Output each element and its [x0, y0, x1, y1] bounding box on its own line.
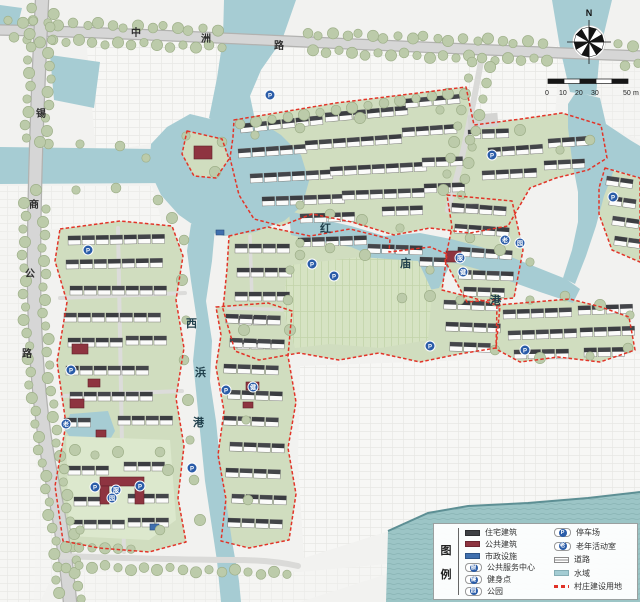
- house-roof: [612, 347, 625, 352]
- house-roof: [333, 138, 346, 143]
- tree: [46, 361, 54, 369]
- house-roof: [450, 342, 463, 347]
- tree: [242, 416, 250, 424]
- public-building: [96, 430, 106, 437]
- legend-label: 公共服务中心: [487, 562, 535, 573]
- open-field: [283, 257, 432, 348]
- svg-text:P: P: [69, 368, 73, 374]
- svg-text:健: 健: [460, 268, 466, 276]
- scale-bar-segment: [596, 79, 612, 84]
- house-roof: [84, 392, 97, 396]
- house-roof: [84, 286, 97, 290]
- house-roof: [344, 166, 357, 171]
- tree: [199, 24, 207, 32]
- house-roof: [280, 145, 293, 150]
- tree: [101, 41, 109, 49]
- tree: [38, 459, 46, 467]
- parking-icon: P: [425, 341, 435, 351]
- parking-icon: P: [83, 245, 93, 255]
- tree: [43, 47, 54, 58]
- house-roof: [424, 184, 437, 189]
- house-roof: [230, 442, 243, 447]
- tree: [111, 183, 121, 193]
- house-roof: [112, 392, 125, 396]
- house-roof: [238, 364, 251, 369]
- tree: [514, 124, 525, 135]
- tree: [73, 581, 83, 591]
- park-icon: 园: [465, 587, 482, 596]
- tree: [47, 523, 57, 533]
- svg-text:P: P: [93, 485, 97, 491]
- tree: [418, 31, 428, 41]
- house-roof: [550, 329, 563, 334]
- tree: [627, 41, 638, 52]
- municipal-swatch: [465, 553, 480, 559]
- tree: [424, 52, 435, 63]
- road: [62, 556, 298, 566]
- house-roof: [146, 416, 159, 420]
- house-roof: [508, 331, 521, 336]
- tree: [452, 54, 460, 62]
- public-building: [194, 146, 212, 159]
- house-roof: [464, 342, 477, 347]
- house-roof: [140, 286, 153, 290]
- tree: [502, 52, 513, 63]
- tree: [42, 372, 53, 383]
- tree: [179, 235, 189, 245]
- tree: [151, 39, 162, 50]
- tree: [9, 32, 19, 42]
- house-roof: [124, 235, 137, 240]
- tree: [77, 595, 85, 602]
- house-roof: [126, 336, 139, 340]
- tree: [283, 112, 293, 122]
- house-roof: [487, 271, 500, 276]
- tree: [38, 308, 48, 318]
- road-left-char: 路: [22, 347, 33, 360]
- house-roof: [94, 366, 107, 370]
- house-roof: [140, 392, 153, 396]
- house-roof: [572, 159, 585, 164]
- scale-tick: 0: [545, 90, 549, 97]
- house-roof: [531, 309, 544, 314]
- river-east-char: 港: [490, 293, 502, 307]
- tree: [457, 191, 465, 199]
- house-roof: [70, 392, 83, 396]
- house-row: [544, 159, 585, 170]
- river-south-char: 港: [193, 415, 205, 429]
- tree: [41, 470, 52, 481]
- house-roof: [375, 135, 388, 140]
- house-roof: [422, 158, 435, 163]
- house-roof: [304, 195, 317, 200]
- house-roof: [430, 125, 443, 130]
- tree: [61, 503, 71, 513]
- legend: 图 例 住宅建筑 公共建筑 市政设施 服 公共服务中心 健 健身点: [433, 523, 638, 600]
- house-roof: [444, 300, 457, 305]
- house-roof: [126, 392, 139, 396]
- tree: [283, 570, 291, 578]
- house-roof: [254, 315, 267, 320]
- house-roof: [244, 442, 257, 447]
- tree: [119, 24, 127, 32]
- tree: [45, 22, 55, 32]
- tree: [87, 38, 97, 48]
- house-roof: [96, 338, 109, 342]
- tree: [586, 352, 594, 360]
- house-roof: [154, 336, 167, 340]
- house-roof: [347, 137, 360, 142]
- tree: [112, 37, 123, 48]
- house-roof: [598, 348, 611, 353]
- house-row: [450, 342, 491, 352]
- tree: [52, 537, 60, 545]
- house-roof: [548, 138, 561, 143]
- svg-text:P: P: [310, 262, 314, 268]
- tree: [295, 123, 305, 133]
- legend-right-column: P 停车场 老 老年活动室 道路 水域 村庄建设用地: [554, 527, 635, 597]
- legend-label: 村庄建设用地: [574, 581, 622, 592]
- house-roof: [235, 292, 248, 296]
- tree: [626, 311, 634, 319]
- legend-label: 老年活动室: [576, 541, 616, 552]
- house-roof: [580, 328, 593, 333]
- house-roof: [263, 292, 276, 296]
- house-roof: [622, 326, 635, 331]
- tree: [399, 48, 409, 58]
- house-roof: [136, 259, 149, 264]
- tree: [113, 544, 123, 554]
- legend-item-residential: 住宅建筑: [465, 527, 550, 538]
- public-building: [72, 344, 88, 354]
- tree: [43, 333, 54, 344]
- tree: [142, 154, 150, 162]
- scale-bar-segment: [548, 79, 564, 84]
- fitness-icon: 健: [458, 267, 468, 277]
- tree: [307, 45, 318, 56]
- tree: [378, 34, 388, 44]
- road-top-char: 路: [274, 39, 285, 52]
- legend-item-municipal: 市政设施: [465, 551, 550, 562]
- road-left-char: 商: [29, 198, 39, 211]
- tree: [460, 174, 470, 184]
- svg-text:P: P: [190, 466, 194, 472]
- tree: [52, 425, 62, 435]
- tree: [434, 34, 442, 42]
- road-left-char: 锡: [36, 107, 46, 120]
- tree: [443, 170, 451, 178]
- tree: [316, 108, 324, 116]
- house-roof: [88, 497, 101, 501]
- house-roof: [412, 188, 425, 193]
- tree: [92, 17, 103, 28]
- tree: [41, 269, 51, 279]
- legend-label: 水域: [574, 568, 590, 579]
- legend-item-service-center: 服 公共服务中心: [465, 562, 550, 573]
- house-roof: [68, 466, 81, 470]
- house-roof: [228, 518, 241, 523]
- tree: [585, 135, 595, 145]
- tree: [114, 564, 122, 572]
- tree: [456, 296, 464, 304]
- house-roof: [98, 286, 111, 290]
- tree: [458, 34, 468, 44]
- house-roof: [370, 190, 383, 195]
- house-roof: [268, 469, 281, 474]
- svg-text:健: 健: [250, 383, 256, 391]
- tree: [68, 18, 78, 28]
- house-roof: [446, 322, 459, 327]
- tree: [21, 211, 31, 221]
- tree: [17, 17, 28, 28]
- house-roof: [496, 170, 509, 175]
- house-row: [68, 466, 109, 475]
- house-roof: [361, 136, 374, 141]
- tree: [217, 567, 227, 577]
- tree: [75, 561, 83, 569]
- tree: [60, 541, 71, 552]
- parking-icon: P: [608, 192, 618, 202]
- house-roof: [496, 129, 509, 134]
- tree: [465, 135, 475, 145]
- tree: [26, 367, 36, 377]
- legend-label: 市政设施: [485, 551, 517, 562]
- house-roof: [254, 469, 267, 474]
- tree: [354, 29, 362, 37]
- house-roof: [64, 313, 77, 317]
- tree: [485, 61, 496, 72]
- tree: [194, 514, 205, 525]
- house-roof: [226, 314, 239, 319]
- tree: [190, 567, 201, 578]
- house-roof: [272, 339, 285, 344]
- tree: [50, 400, 58, 408]
- house-roof: [268, 315, 281, 320]
- tree: [614, 40, 622, 48]
- house-row: [68, 234, 165, 245]
- tree: [446, 153, 456, 163]
- tree: [456, 105, 466, 115]
- tree: [396, 224, 404, 232]
- fitness-icon: 健: [248, 382, 258, 392]
- house-roof: [544, 160, 557, 165]
- house-roof: [530, 144, 543, 149]
- tree: [374, 49, 382, 57]
- house-roof: [578, 306, 591, 311]
- tree: [314, 32, 322, 40]
- tree: [538, 39, 548, 49]
- parking-icon: P: [90, 482, 100, 492]
- house-roof: [252, 365, 265, 370]
- house-roof: [152, 462, 165, 466]
- house-roof: [70, 286, 83, 290]
- house-roof: [96, 235, 109, 240]
- house-roof: [98, 520, 111, 524]
- house-roof: [134, 313, 147, 317]
- house-roof: [251, 268, 264, 272]
- house-roof: [266, 365, 279, 370]
- house-roof: [122, 259, 135, 264]
- tree: [172, 22, 183, 33]
- house-roof: [226, 468, 239, 473]
- tree: [18, 314, 29, 325]
- house-row: [64, 313, 161, 322]
- house-roof: [258, 339, 271, 344]
- house-roof: [312, 237, 325, 242]
- house-roof: [263, 244, 276, 248]
- house-roof: [382, 244, 395, 249]
- tree: [52, 576, 60, 584]
- house-roof: [452, 203, 465, 208]
- tree: [256, 570, 266, 580]
- house-roof: [84, 520, 97, 524]
- public-building: [88, 379, 100, 387]
- tree: [166, 212, 177, 223]
- house-roof: [256, 391, 269, 396]
- house-roof: [126, 286, 139, 290]
- river-east-char: 庙: [400, 256, 411, 270]
- house-roof: [78, 313, 91, 317]
- tree: [39, 294, 50, 305]
- water-body: [0, 147, 176, 184]
- tree: [407, 33, 418, 44]
- tree: [379, 98, 389, 108]
- parking-icon: P: [307, 259, 317, 269]
- tree: [477, 53, 487, 63]
- river-south-char: 浜: [195, 365, 206, 379]
- house-roof: [502, 146, 515, 151]
- house-roof: [224, 364, 237, 369]
- house-roof: [140, 336, 153, 340]
- tree: [354, 112, 365, 123]
- tree: [325, 243, 335, 253]
- house-roof: [270, 519, 283, 524]
- tree: [66, 517, 74, 525]
- house-row: [382, 206, 423, 216]
- tree: [59, 478, 67, 486]
- svg-text:服: 服: [457, 254, 464, 262]
- tree: [155, 447, 165, 457]
- tree: [620, 61, 630, 71]
- house-roof: [389, 134, 402, 139]
- tree: [250, 116, 261, 127]
- legend-label: 道路: [574, 554, 590, 565]
- tree: [73, 34, 84, 45]
- scale-bar-segment: [580, 79, 596, 84]
- legend-label: 停车场: [576, 527, 600, 538]
- tree: [41, 322, 49, 330]
- tree: [359, 249, 370, 260]
- house-roof: [82, 338, 95, 342]
- house-roof: [606, 305, 619, 310]
- tree: [42, 205, 50, 213]
- tree: [438, 51, 448, 61]
- house-roof: [112, 286, 125, 290]
- house-roof: [562, 137, 575, 142]
- tree: [18, 197, 29, 208]
- tree: [268, 566, 279, 577]
- tree: [327, 28, 338, 39]
- house-roof: [150, 258, 163, 263]
- parking-icon: P: [329, 271, 339, 281]
- tree: [463, 157, 474, 168]
- tree: [24, 28, 35, 39]
- scale-tick: 20: [575, 90, 583, 97]
- tree: [47, 36, 55, 44]
- tree: [26, 392, 37, 403]
- tree: [148, 23, 158, 33]
- tree: [321, 48, 331, 58]
- house-roof: [260, 495, 273, 500]
- house-roof: [156, 518, 169, 522]
- house-roof: [510, 169, 523, 174]
- tree: [238, 324, 249, 335]
- house-roof: [356, 190, 369, 195]
- house-roof: [503, 310, 516, 315]
- svg-text:老: 老: [62, 420, 69, 428]
- house-row: [126, 336, 167, 345]
- tree: [218, 43, 226, 51]
- tree: [534, 352, 545, 363]
- map-svg: PPPPPPPPPPPPP服服健健园园老老 中 洲 路 锡 商 公 路 红 庙 …: [0, 0, 640, 602]
- house-roof: [558, 160, 571, 165]
- house-roof: [110, 235, 123, 240]
- house-roof: [142, 518, 155, 522]
- tree: [438, 184, 449, 195]
- legend-item-fitness: 健 健身点: [465, 574, 550, 585]
- house-roof: [342, 191, 355, 196]
- tree: [41, 125, 52, 136]
- tree: [335, 46, 343, 54]
- tree: [159, 21, 167, 29]
- tree: [40, 484, 50, 494]
- svg-text:P: P: [332, 274, 336, 280]
- tree: [19, 225, 27, 233]
- tree: [100, 560, 110, 570]
- legend-label: 健身点: [487, 574, 511, 585]
- tree: [474, 37, 482, 45]
- house-roof: [252, 147, 265, 152]
- parking-icon: P: [187, 463, 197, 473]
- house-roof: [536, 330, 549, 335]
- house-roof: [249, 292, 262, 296]
- svg-text:P: P: [138, 484, 142, 490]
- house-roof: [242, 518, 255, 523]
- house-roof: [74, 497, 87, 501]
- house-roof: [124, 462, 137, 466]
- house-roof: [110, 338, 123, 342]
- house-row: [66, 258, 163, 269]
- tree: [464, 74, 472, 82]
- house-roof: [594, 327, 607, 332]
- house-roof: [416, 126, 429, 131]
- tree: [244, 568, 252, 576]
- tree: [34, 136, 45, 147]
- house-roof: [559, 308, 572, 313]
- tree: [251, 131, 259, 139]
- house-roof: [400, 163, 413, 168]
- house-roof: [620, 304, 633, 309]
- tree: [190, 42, 201, 53]
- svg-text:P: P: [490, 153, 494, 159]
- scale-tick: 30: [591, 90, 599, 97]
- tree: [454, 122, 462, 130]
- svg-text:P: P: [523, 348, 527, 354]
- legend-item-road: 道路: [554, 554, 635, 565]
- tree: [427, 91, 437, 101]
- tree: [296, 239, 304, 247]
- tree: [23, 106, 34, 117]
